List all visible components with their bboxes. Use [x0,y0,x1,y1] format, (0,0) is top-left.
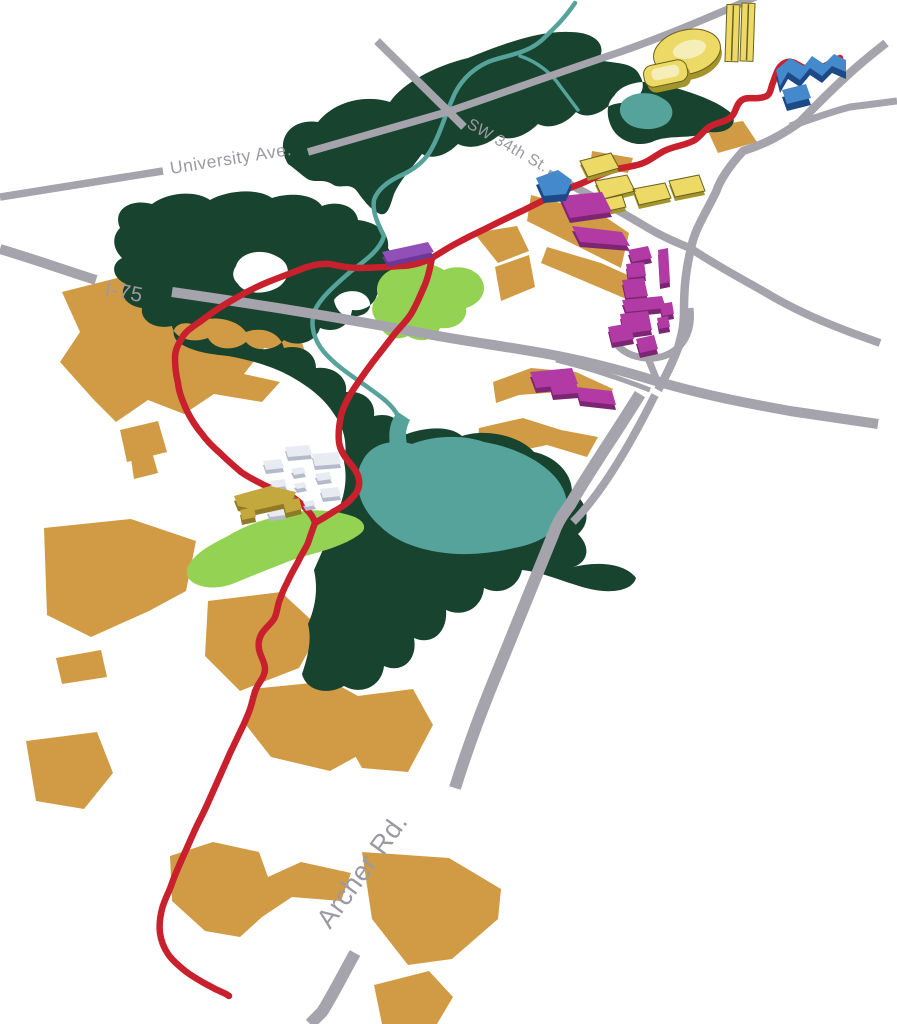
university-ave-road [0,171,163,197]
archer-rd-road-south [310,953,355,1024]
tower-building [725,2,755,62]
campus-route-map: University Ave. SW 34th St. I-75 Archer … [0,0,897,1024]
map-canvas: University Ave. SW 34th St. I-75 Archer … [0,0,897,1024]
i-75-road-west [0,249,96,280]
road-label-university-ave: University Ave. [168,139,293,178]
